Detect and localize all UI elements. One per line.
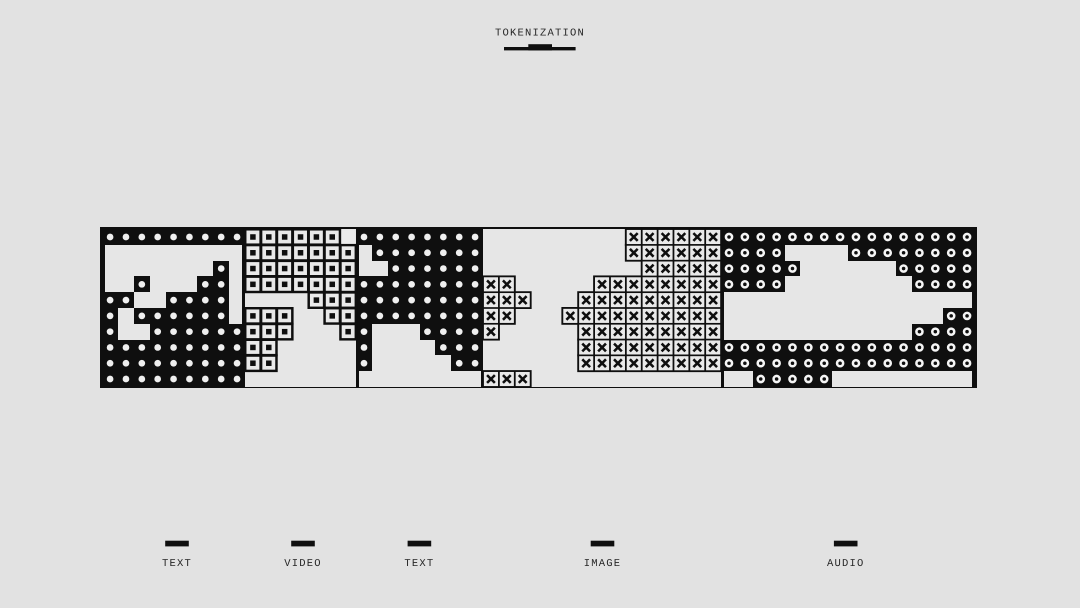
- svg-text:VIDEO: VIDEO: [284, 558, 322, 570]
- svg-text:TOKENIZATION: TOKENIZATION: [495, 28, 585, 40]
- svg-text:IMAGE: IMAGE: [584, 558, 622, 570]
- svg-text:TEXT: TEXT: [162, 558, 192, 570]
- svg-text:TEXT: TEXT: [404, 558, 434, 570]
- svg-text:AUDIO: AUDIO: [827, 558, 865, 570]
